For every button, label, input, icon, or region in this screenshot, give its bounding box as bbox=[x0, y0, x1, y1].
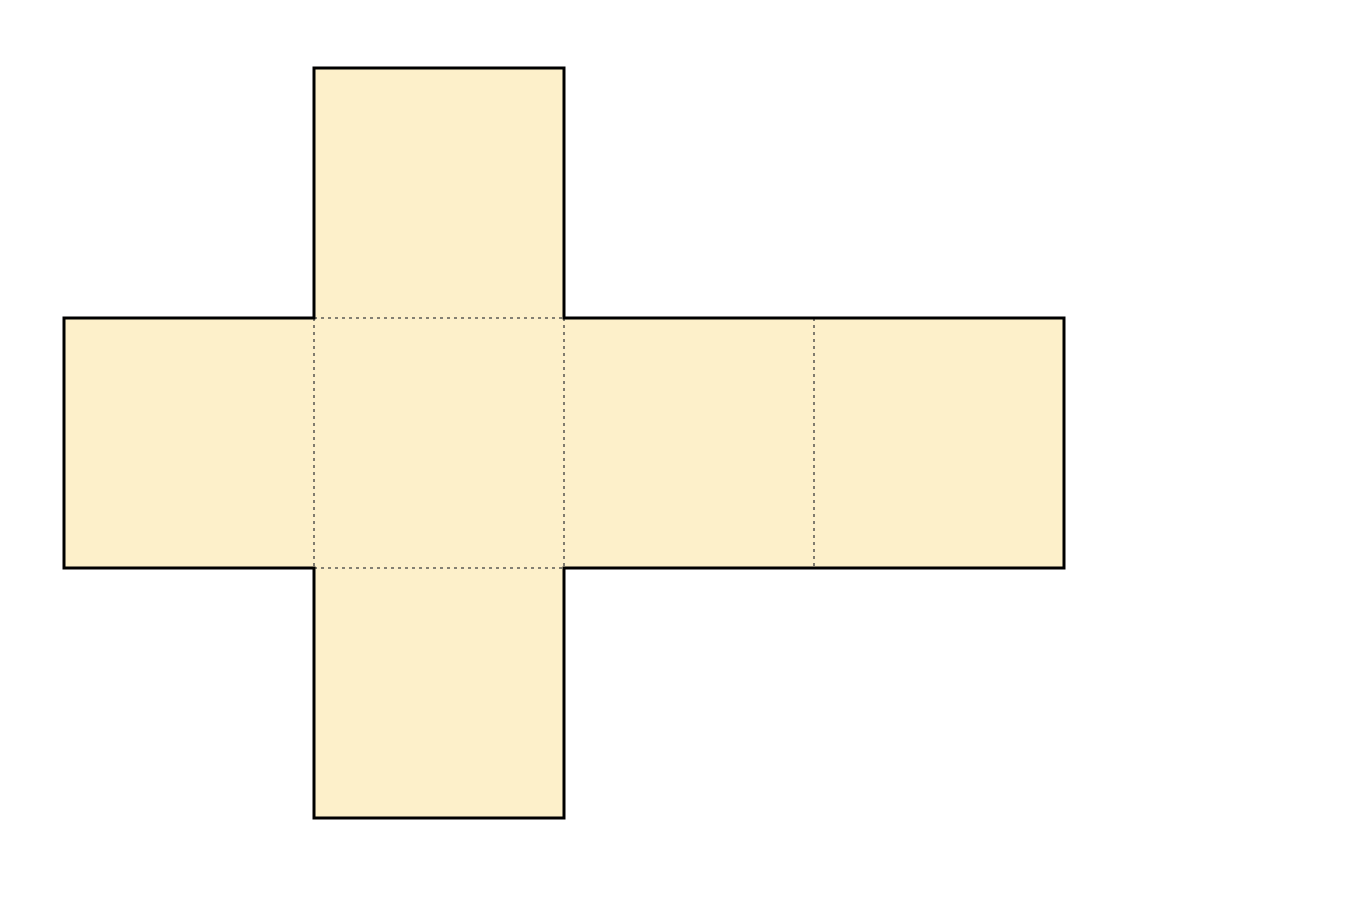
face-bottom-flap bbox=[314, 568, 564, 818]
face-row-right-1 bbox=[564, 318, 814, 568]
diagram-canvas bbox=[0, 0, 1352, 899]
face-row-center bbox=[314, 318, 564, 568]
face-row-left bbox=[64, 318, 314, 568]
cube-net-diagram bbox=[0, 0, 1352, 899]
face-row-right-2 bbox=[814, 318, 1064, 568]
face-top-flap bbox=[314, 68, 564, 318]
